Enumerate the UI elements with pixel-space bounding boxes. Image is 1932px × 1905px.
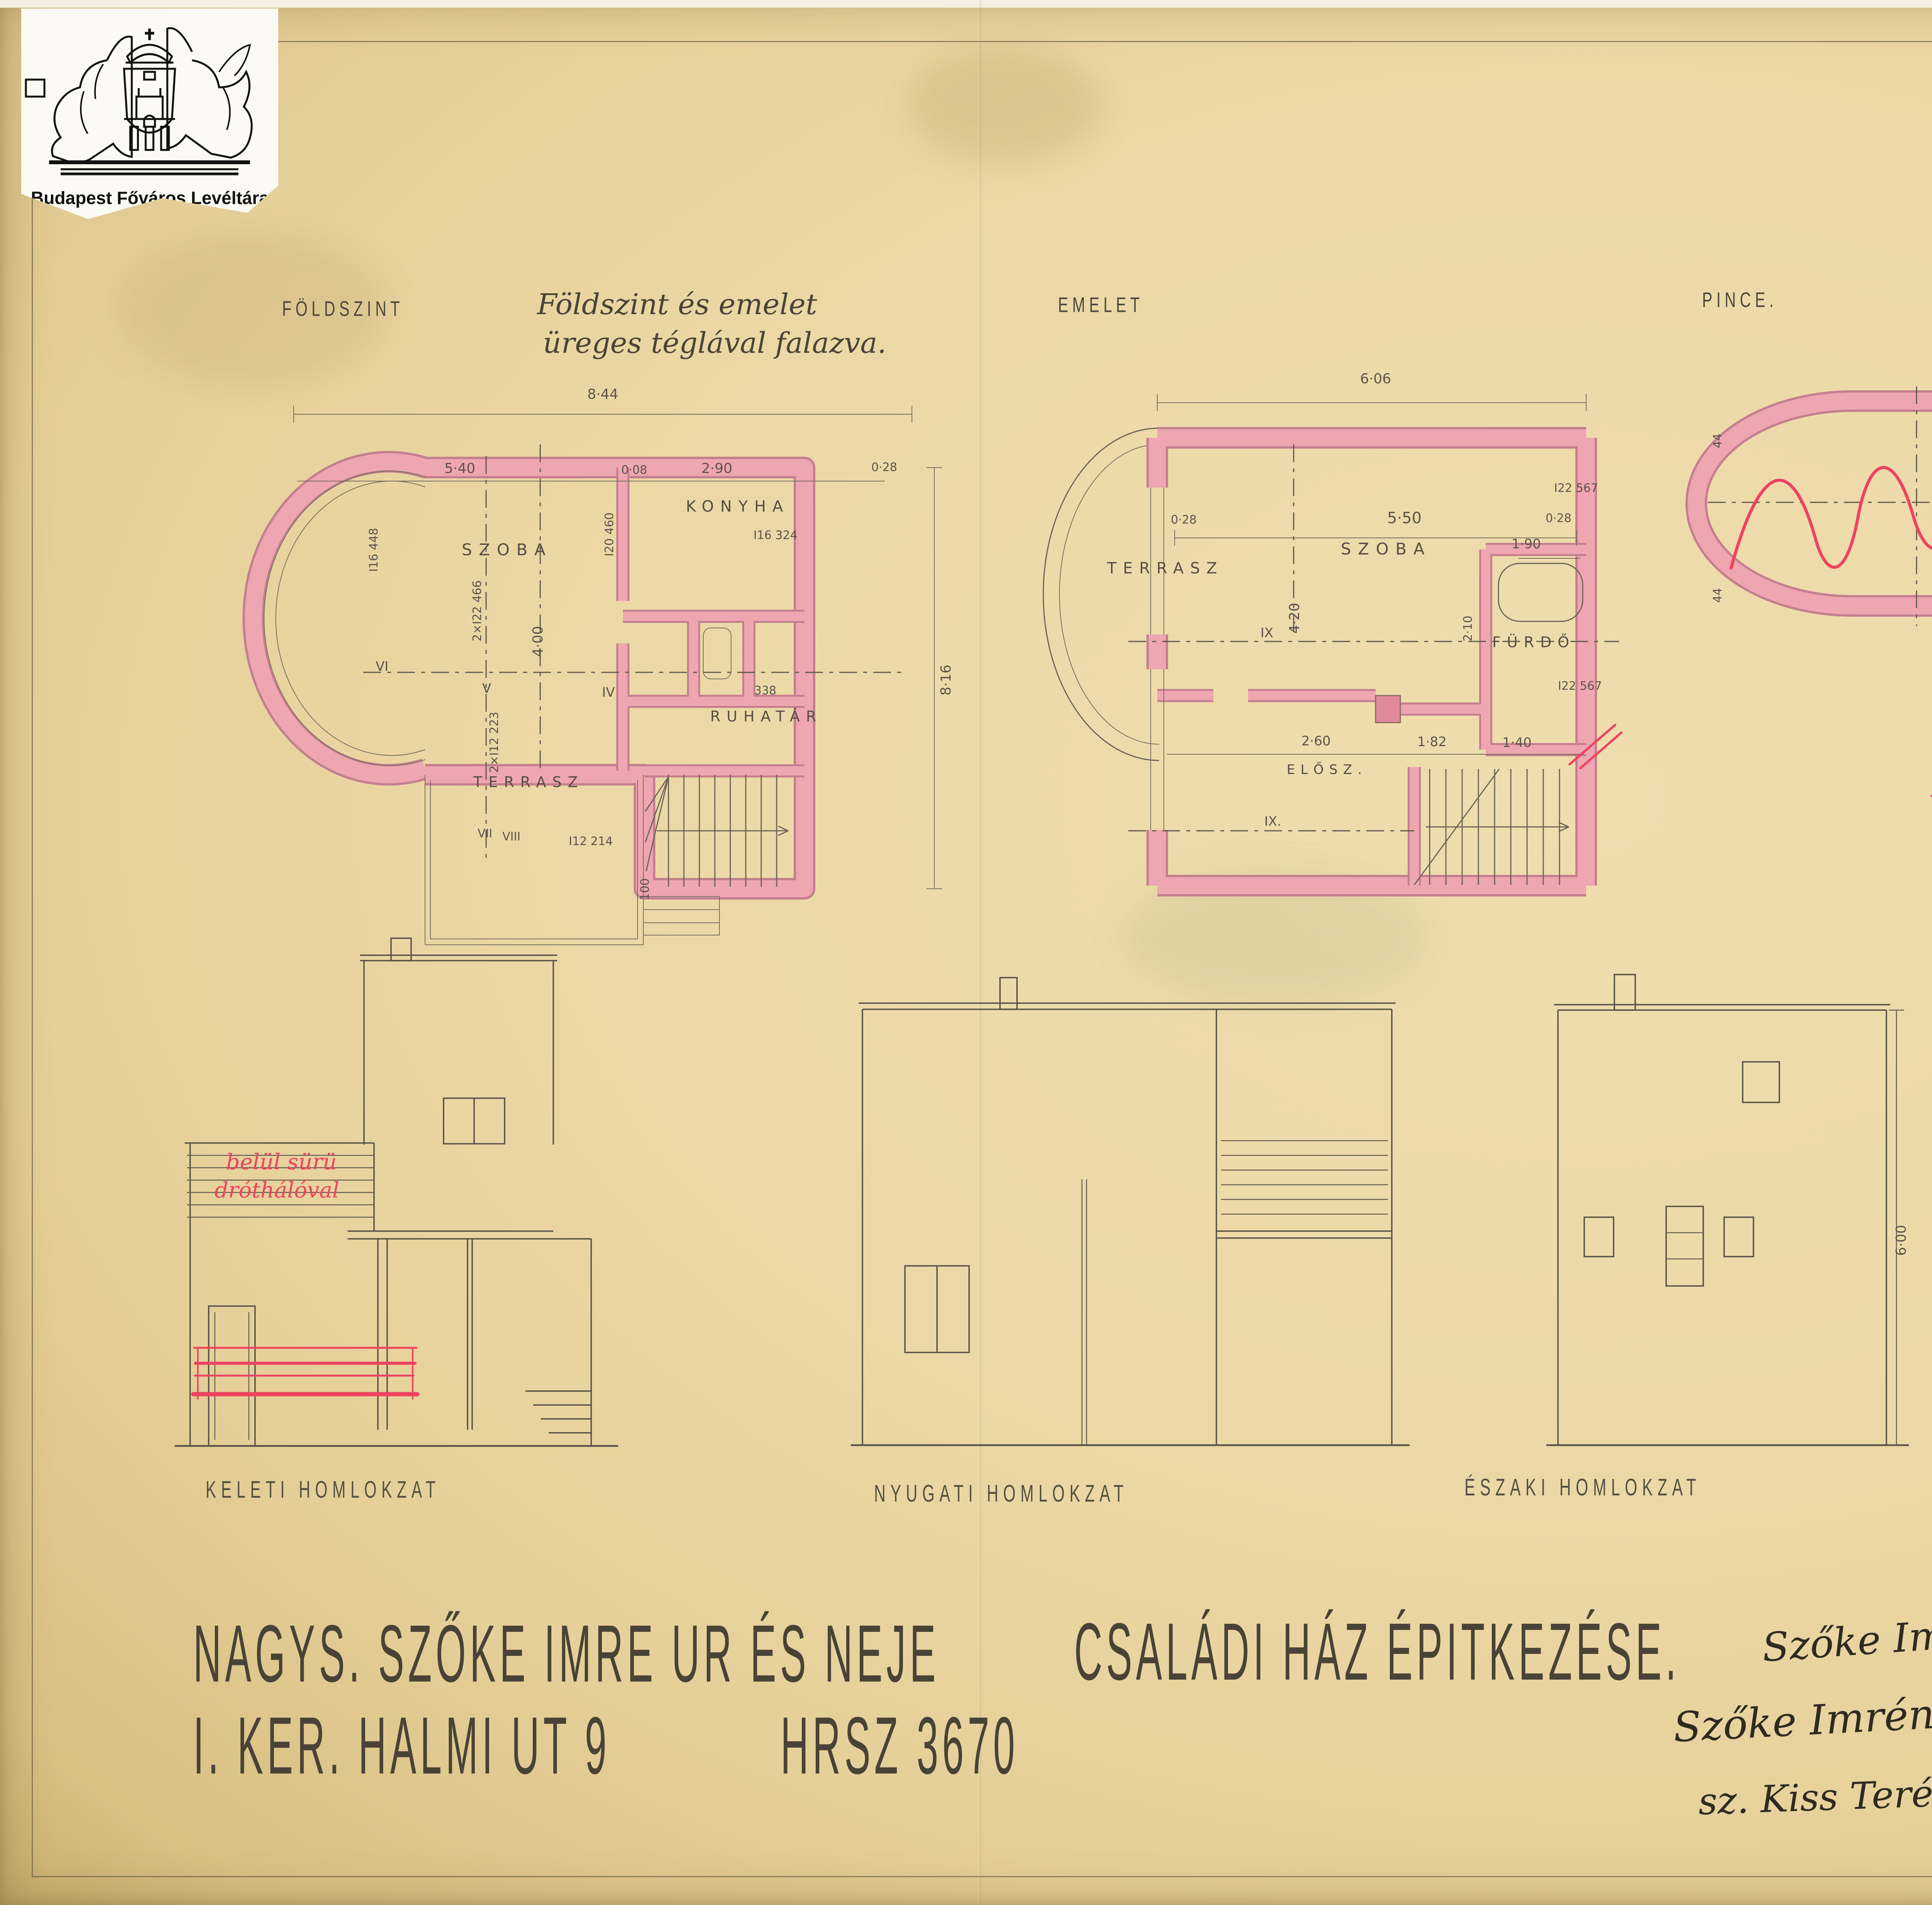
dim: 8·16 [938, 665, 954, 696]
label-emelet: EMELET [1058, 293, 1144, 317]
dim: 6·00 [1893, 1225, 1909, 1256]
note-line2: üreges téglával falazva. [543, 327, 886, 360]
dim: 2·60 [1301, 733, 1331, 749]
dim: 5·50 [1387, 509, 1422, 527]
dim: IX. [1264, 814, 1281, 829]
room-furdo: FÜRDŐ [1492, 634, 1575, 651]
dim: VIII [502, 830, 520, 844]
room-elosz: ELŐSZ. [1287, 762, 1367, 777]
room-terrasz: TERRASZ [473, 774, 584, 791]
plan-emelet [1020, 363, 1700, 966]
dim: 2×I22 466 [471, 580, 484, 641]
red-note-keleti-1: belül sürü [226, 1150, 337, 1175]
room-konyha: KONYHA [686, 498, 789, 515]
dim: 338 [754, 684, 776, 697]
dim: VII [478, 827, 492, 840]
caption-keleti: KELETI HOMLOKZAT [206, 1475, 440, 1504]
signature-owner-3: sz. Kiss Teréz [1697, 1771, 1932, 1823]
dim: 1·40 [1502, 735, 1532, 750]
dim: 0·08 [621, 463, 647, 477]
dim: 100 [638, 878, 652, 900]
dim: 4·20 [1287, 603, 1303, 634]
caption-nyugati: NYUGATI HOMLOKZAT [874, 1479, 1128, 1507]
dim: 1·90 [1512, 536, 1541, 552]
dim: 2·90 [701, 461, 732, 476]
scan-edge [0, 0, 1932, 8]
title-line2b: HRSZ 3670 [781, 1699, 1019, 1793]
elevation-eszaki [1530, 943, 1932, 1484]
caption-eszaki: ÉSZAKI HOMLOKZAT [1464, 1473, 1701, 1501]
paper-stain [908, 46, 1101, 162]
room-szoba-emelet: SZOBA [1341, 539, 1431, 558]
dim: I22 567 [1554, 481, 1598, 495]
dim: 0·28 [871, 461, 897, 474]
dim: VI [376, 659, 388, 674]
room-terrasz-emelet: TERRASZ [1107, 560, 1223, 577]
dim: 0·28 [1546, 512, 1571, 525]
blueprint-sheet: Budapest Főváros Levéltára FÖLDSZINT Föl… [0, 0, 1932, 1905]
title-line2a: I. KER. HALMI UT 9 [193, 1699, 611, 1793]
dim: 1·82 [1417, 734, 1447, 750]
dim: I12 214 [569, 835, 613, 848]
dim: 44 [1711, 434, 1725, 448]
dim: 2×I12 223 [488, 712, 501, 773]
dim: 0·28 [1171, 513, 1197, 527]
plan-pince [1673, 371, 1932, 974]
dim: I22 567 [1558, 679, 1602, 693]
dim: 5·40 [444, 461, 475, 476]
budapest-coat-of-arms-icon [26, 14, 273, 176]
room-ruhatar: RUHATÁR [710, 708, 822, 725]
label-foldszint: FÖLDSZINT [282, 297, 404, 321]
note-line1: Földszint és emelet [537, 288, 817, 321]
dim: 2·10 [1461, 616, 1475, 641]
title-line1a: NAGYS. SZŐKE IMRE UR ÉS NEJE [193, 1607, 939, 1701]
fold-line [978, 0, 981, 1905]
dim: 8·44 [587, 386, 618, 402]
title-line1b: CSALÁDI HÁZ ÉPITKEZÉSE. [1074, 1606, 1680, 1699]
archive-label: Budapest Főváros Levéltára [21, 9, 278, 219]
dim: I16 448 [367, 528, 381, 572]
dim: IX [1260, 625, 1273, 641]
dim: I16 324 [753, 529, 798, 542]
red-note-keleti-2: dróthálóval [214, 1178, 339, 1203]
dim: V [482, 681, 491, 696]
dim: IV [602, 685, 615, 700]
dim: 6·06 [1360, 371, 1391, 387]
room-szoba: SZOBA [462, 540, 552, 559]
dim: 4·00 [530, 626, 546, 657]
elevation-nyugati [842, 966, 1422, 1476]
dim: 44 [1711, 588, 1725, 603]
dim: I20 460 [603, 512, 616, 556]
label-pince: PINCE. [1702, 288, 1777, 312]
